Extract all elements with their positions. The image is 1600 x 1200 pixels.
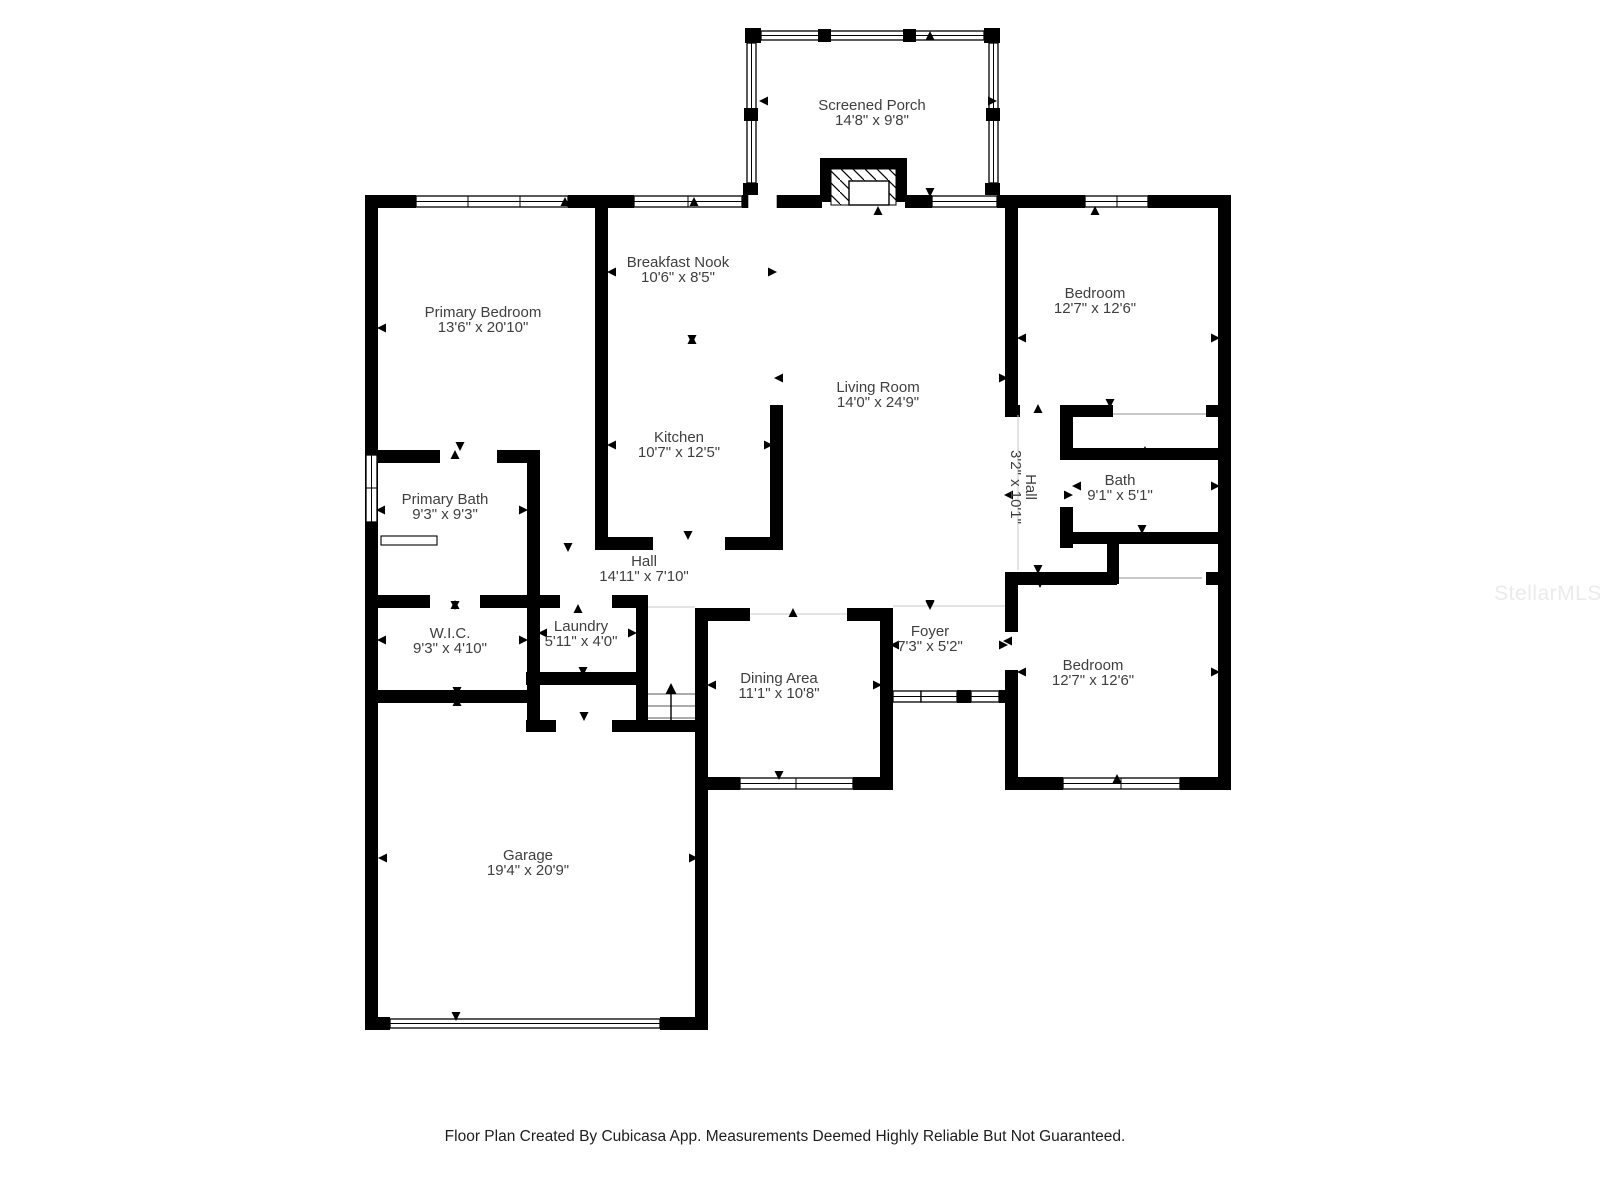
room-label-bedroom-top: Bedroom12'7" x 12'6" (1054, 285, 1136, 317)
dimension-arrow (451, 450, 460, 459)
dimension-arrow (607, 441, 616, 450)
dimension-arrow (1017, 668, 1026, 677)
window (416, 196, 568, 207)
room-label-primary-bath: Primary Bath9'3" x 9'3" (402, 491, 489, 523)
room-label-garage: Garage19'4" x 20'9" (487, 847, 569, 879)
wall-segment (1018, 572, 1117, 585)
wall-segment (880, 608, 893, 790)
window (1085, 196, 1148, 207)
wall-segment (957, 690, 971, 703)
wall-segment (1180, 777, 1231, 790)
wall-segment (636, 595, 648, 720)
wall-segment (595, 537, 653, 550)
room-label-bedroom-bottom: Bedroom12'7" x 12'6" (1052, 657, 1134, 689)
wall-segment (612, 595, 648, 608)
wall-segment (695, 608, 708, 1030)
dimension-arrow (1034, 404, 1043, 413)
wall-segment (708, 608, 750, 621)
porch-corner-post (984, 28, 1000, 43)
dimension-arrow (768, 268, 777, 277)
room-label-kitchen: Kitchen10'7" x 12'5" (638, 429, 720, 461)
window (366, 455, 377, 522)
dimension-arrow (564, 543, 573, 552)
dimension-arrow (519, 506, 528, 515)
front-door (921, 691, 957, 702)
wall-segment (847, 608, 880, 621)
wall-segment (1060, 407, 1073, 460)
wall-segment (1206, 405, 1218, 417)
wall-segment (905, 195, 932, 208)
wall-segment (540, 595, 560, 608)
wall-segment (742, 195, 747, 208)
dimension-arrow (707, 681, 716, 690)
room-label-living-room: Living Room14'0" x 24'9" (836, 379, 919, 411)
sidelight-window (893, 691, 921, 702)
room-label-primary-bedroom: Primary Bedroom13'6" x 20'10" (425, 304, 542, 336)
floor-plan-page: { "plan": { "rooms": [ {"id":"screened-p… (0, 0, 1600, 1200)
wall-segment (1206, 572, 1218, 585)
wall-segment (1005, 195, 1018, 407)
fireplace (820, 158, 907, 205)
porch-post (986, 108, 1000, 121)
dimension-arrow (378, 854, 387, 863)
wall-segment (378, 450, 440, 463)
stellar-mls-watermark: StellarMLS (1494, 582, 1600, 605)
dimension-arrow (1064, 491, 1073, 500)
wall-segment (595, 195, 608, 550)
room-label-screened-porch: Screened Porch14'8" x 9'8" (818, 97, 926, 129)
room-label-hall-vertical: Hall3'2" x 10'1" (1007, 450, 1039, 524)
wall-segment (1005, 572, 1018, 632)
room-label-laundry: Laundry5'11" x 4'0" (545, 618, 618, 650)
wall-segment (778, 195, 822, 208)
boundary-lines (648, 414, 1206, 614)
dimension-arrow (1017, 334, 1026, 343)
dimension-arrow (1072, 482, 1081, 491)
dimension-arrow (874, 206, 883, 215)
dimension-arrow (580, 712, 589, 721)
dimension-arrow (574, 604, 583, 613)
dimension-arrow (456, 442, 465, 451)
dimension-arrow (519, 636, 528, 645)
wall-segment (365, 195, 378, 1030)
porch-corner-post (745, 28, 761, 43)
dimension-arrow (628, 629, 637, 638)
porch-post (903, 29, 916, 42)
wall-segment (378, 595, 430, 608)
room-label-breakfast-nook: Breakfast Nook10'6" x 8'5" (627, 254, 730, 286)
wall-segment (999, 690, 1018, 703)
room-label-foyer: Foyer7'3" x 5'2" (897, 623, 963, 655)
wall-segment (527, 450, 540, 732)
window (740, 778, 853, 789)
porch-post (985, 183, 1000, 195)
wall-segment (1218, 195, 1231, 790)
front-door (971, 691, 999, 702)
vanity-counter (381, 536, 437, 545)
dimension-arrow (377, 324, 386, 333)
window (1063, 778, 1180, 789)
wall-segment (660, 1017, 708, 1030)
wall-segment (1005, 670, 1018, 790)
wall-segment (770, 405, 783, 550)
wall-segment (1060, 507, 1073, 548)
wall-segment (1073, 532, 1218, 544)
dimension-arrow (774, 374, 783, 383)
room-label-wic: W.I.C.9'3" x 4'10" (413, 625, 487, 657)
room-label-bath: Bath9'1" x 5'1" (1087, 472, 1153, 504)
footer-disclaimer: Floor Plan Created By Cubicasa App. Meas… (445, 1128, 1126, 1145)
porch-post (743, 183, 758, 195)
wall-segment (480, 595, 527, 608)
wall-segment (365, 1017, 390, 1030)
floor-plan-svg: Screened Porch14'8" x 9'8" Primary Bedro… (0, 0, 1600, 1200)
room-label-dining-area: Dining Area11'1" x 10'8" (738, 670, 819, 702)
window (634, 196, 742, 207)
stairs-up-arrow (666, 683, 677, 694)
dimension-arrow (377, 636, 386, 645)
garage-door (390, 1019, 660, 1028)
firebox (849, 181, 889, 205)
porch-post (818, 29, 831, 42)
wall-segment (378, 195, 416, 208)
dimension-arrow (789, 608, 798, 617)
porch-post (744, 108, 758, 121)
wall-segment (526, 672, 648, 685)
wall-segment (612, 720, 708, 732)
window (932, 196, 997, 207)
dimension-arrow (759, 97, 768, 106)
dimension-arrow (607, 268, 616, 277)
dimension-arrow (684, 531, 693, 540)
room-label-hall-horizontal: Hall14'11" x 7'10" (599, 553, 689, 585)
